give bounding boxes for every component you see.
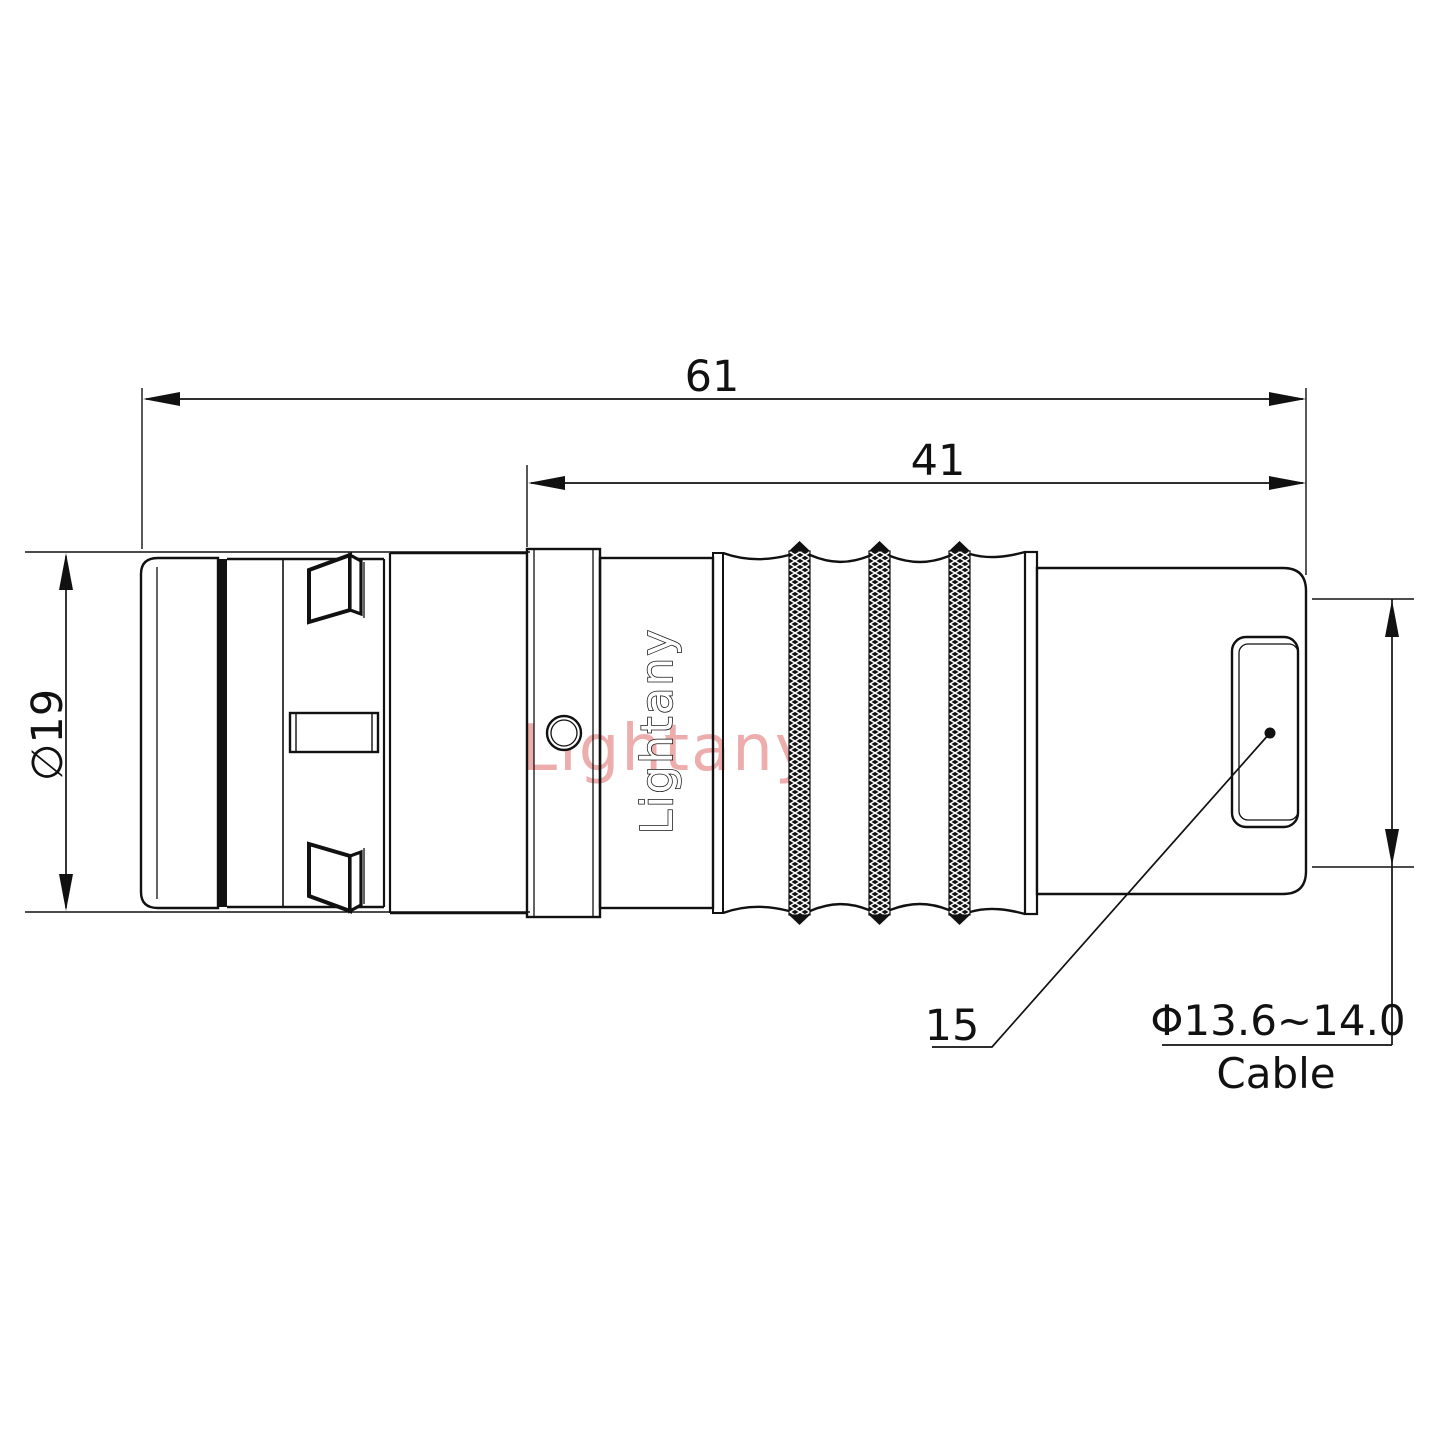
vent-hole [547,716,581,750]
overall-length-label: 61 [685,352,740,402]
rear-collar [1025,552,1037,914]
key-block [290,713,378,752]
plain-ring [390,553,527,913]
dimension-body-diameter [25,552,530,912]
arrowhead-up-icon [1385,600,1399,637]
mid-length-label: 41 [911,436,966,486]
cable-word-label: Cable [1216,1049,1335,1098]
marking-ring [218,559,227,907]
arrowhead-down-icon [1385,829,1399,866]
technical-drawing-canvas: Lightany [0,0,1440,1440]
latch-clip-top [309,555,364,622]
arrowhead-left-icon [528,476,565,490]
knurl-band-2 [869,541,890,925]
arrowhead-left-icon [143,392,180,406]
latch-clip-bottom [309,844,364,911]
arrowhead-right-icon [1269,476,1306,490]
knurl-band-3 [949,541,970,925]
arrowhead-right-icon [1269,392,1306,406]
latch-section [227,553,390,913]
connector-body [141,541,1306,925]
dimension-overall-length [142,388,1306,575]
knurl-band-1 [789,541,810,925]
front-cap [141,558,218,908]
rear-ref-label: 15 [925,1001,980,1051]
connector-drawing: Lightany [0,0,1440,1440]
body-diameter-label: ∅19 [23,689,73,781]
engraving-text: Lightany [632,628,683,835]
cable-range-label: Φ13.6~14.0 [1150,996,1405,1045]
arrowhead-down-icon [59,874,73,911]
arrowhead-up-icon [59,553,73,590]
